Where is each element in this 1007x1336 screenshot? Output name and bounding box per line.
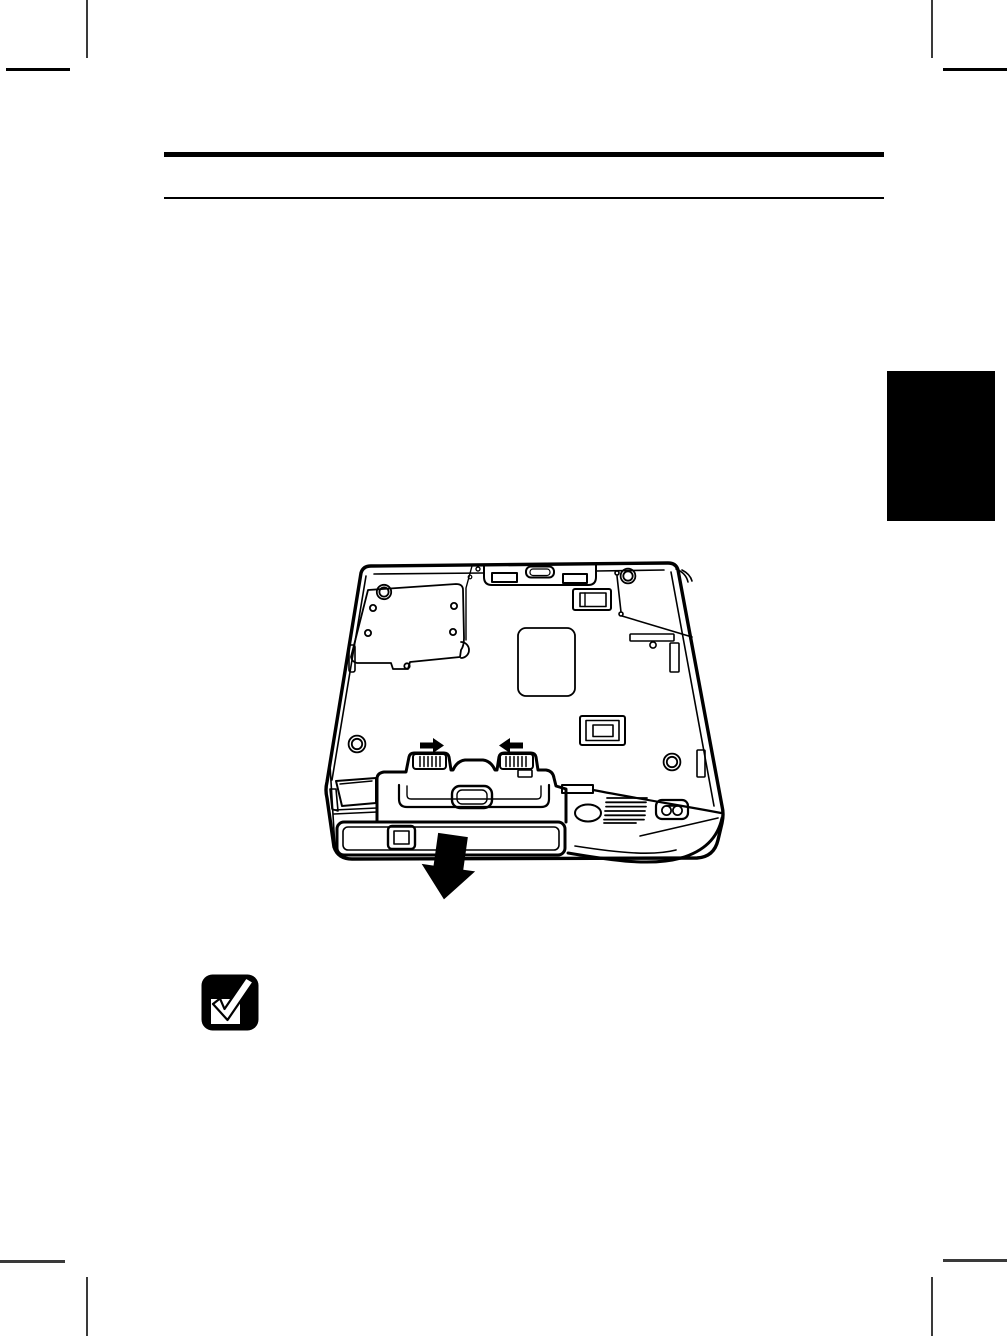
front-right-face: [562, 785, 722, 862]
memory-cover-panel: [351, 566, 472, 669]
vent-grill: [604, 798, 647, 823]
manual-page: [0, 0, 1007, 1336]
slide-arrow-left-icon: [499, 738, 523, 753]
note-text: [280, 980, 840, 1040]
ir-port-oval: [575, 805, 601, 822]
battery-pull-out-arrow-icon: [417, 831, 480, 903]
upper-right-plate: [573, 589, 611, 610]
battery-latch-left: [413, 754, 446, 769]
battery-latch-right: [500, 754, 533, 777]
front-left-corner-details: [330, 778, 377, 814]
battery-grip-groove: [399, 785, 549, 808]
product-label: [518, 628, 575, 696]
docking-connector-bay: [476, 565, 596, 585]
rubber-foot-curve: [568, 818, 722, 862]
right-panel-details: [349, 571, 705, 777]
slide-arrow-right-icon: [420, 738, 444, 753]
checkbox-tick-icon: [200, 973, 260, 1032]
lower-right-plate: [580, 716, 625, 745]
laptop-underside-battery-removal-drawing: [0, 0, 1007, 1336]
